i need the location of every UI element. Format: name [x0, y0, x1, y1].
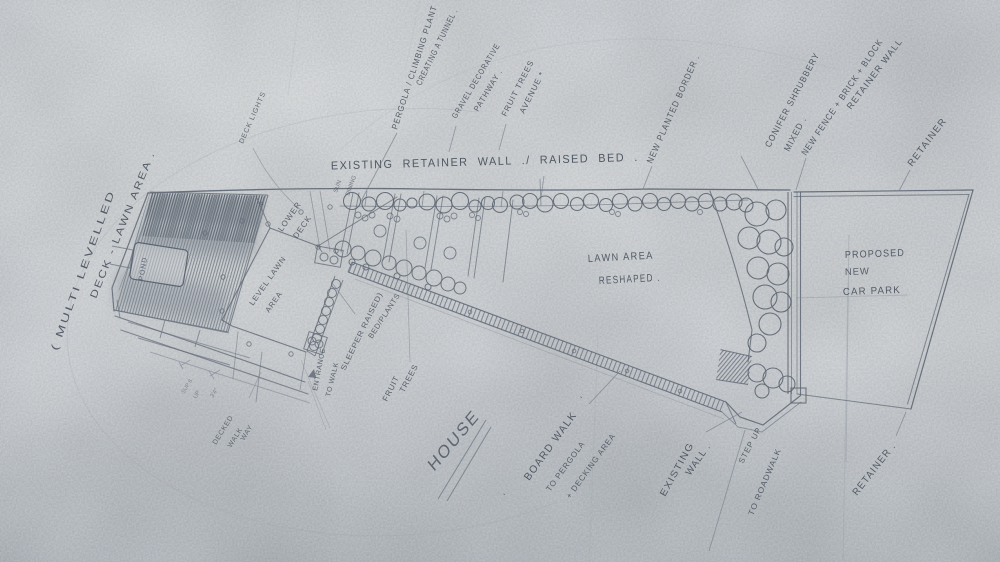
- svg-text:NEW: NEW: [845, 266, 870, 278]
- svg-text:PROPOSED: PROPOSED: [845, 248, 905, 261]
- svg-text:CAR PARK: CAR PARK: [843, 285, 901, 298]
